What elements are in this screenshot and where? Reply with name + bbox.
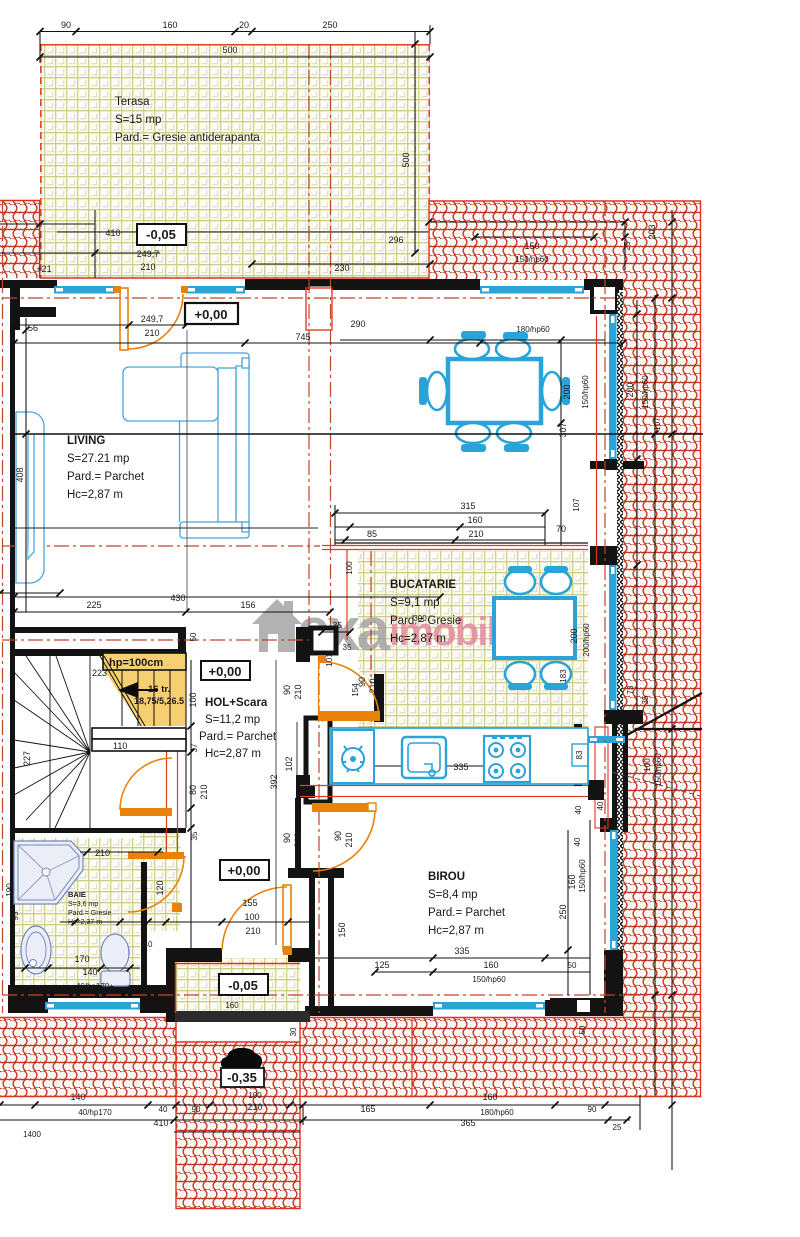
svg-text:Pard.= Gresie: Pard.= Gresie: [68, 910, 111, 917]
svg-text:210: 210: [247, 1102, 262, 1112]
svg-text:150/hp60: 150/hp60: [472, 975, 506, 984]
svg-text:150/hp60: 150/hp60: [578, 859, 587, 893]
svg-text:223: 223: [92, 668, 107, 678]
svg-text:35: 35: [343, 643, 352, 652]
svg-text:90: 90: [282, 833, 292, 843]
svg-text:S=11,2 mp: S=11,2 mp: [205, 714, 260, 726]
svg-text:Terasa: Terasa: [115, 96, 150, 108]
svg-text:120: 120: [155, 880, 165, 895]
svg-text:Pard.= Parchet: Pard.= Parchet: [67, 471, 145, 483]
svg-text:40/hp170: 40/hp170: [78, 1108, 112, 1117]
svg-text:150/hp60: 150/hp60: [515, 255, 549, 264]
svg-text:101: 101: [325, 653, 334, 667]
svg-text:500: 500: [222, 45, 237, 55]
svg-text:100: 100: [188, 692, 198, 707]
svg-text:90: 90: [282, 685, 292, 695]
svg-text:100: 100: [643, 758, 652, 772]
svg-text:183: 183: [559, 669, 568, 683]
svg-text:50: 50: [578, 1025, 587, 1034]
svg-text:Hc=2,87 m: Hc=2,87 m: [390, 633, 446, 645]
svg-text:140: 140: [70, 1092, 85, 1102]
svg-text:Pard.= Parchet: Pard.= Parchet: [428, 907, 506, 919]
svg-text:290: 290: [350, 319, 365, 329]
svg-text:-0,05: -0,05: [228, 978, 258, 993]
svg-text:Hc=2,87 m: Hc=2,87 m: [205, 748, 261, 760]
svg-text:410: 410: [105, 228, 120, 238]
svg-text:30: 30: [289, 1027, 298, 1036]
svg-text:-0,05: -0,05: [146, 227, 176, 242]
svg-text:210: 210: [140, 262, 155, 272]
svg-text:18,75/5,26.5: 18,75/5,26.5: [134, 696, 184, 706]
svg-text:365: 365: [460, 1118, 475, 1128]
svg-text:160: 160: [162, 20, 177, 30]
svg-text:40/hp170+: 40/hp170+: [76, 982, 114, 991]
svg-text:335: 335: [454, 946, 469, 956]
svg-text:150/hp60: 150/hp60: [581, 375, 590, 409]
svg-text:+21: +21: [36, 264, 51, 274]
svg-text:315: 315: [460, 501, 475, 511]
svg-text:160: 160: [225, 1001, 239, 1010]
svg-text:90: 90: [333, 831, 343, 841]
svg-text:50: 50: [189, 632, 198, 641]
svg-text:249,7: 249,7: [141, 314, 164, 324]
svg-text:40: 40: [574, 805, 583, 814]
svg-text:160: 160: [467, 515, 482, 525]
svg-text:107: 107: [653, 417, 662, 431]
svg-text:BUCATARIE: BUCATARIE: [390, 579, 456, 591]
svg-text:165: 165: [360, 1104, 375, 1114]
svg-text:210: 210: [293, 684, 303, 699]
svg-text:80: 80: [188, 785, 198, 795]
svg-text:HOL+Scara: HOL+Scara: [205, 697, 268, 709]
svg-text:Hc=2,87 m: Hc=2,87 m: [428, 925, 484, 937]
svg-text:40: 40: [573, 837, 582, 846]
svg-text:+0,00: +0,00: [209, 664, 242, 679]
svg-text:430: 430: [170, 593, 185, 603]
svg-text:180/hp60: 180/hp60: [480, 1108, 514, 1117]
svg-text:95: 95: [11, 911, 20, 920]
svg-text:296: 296: [388, 235, 403, 245]
svg-text:160: 160: [482, 1092, 497, 1102]
svg-text:+0,00: +0,00: [195, 307, 228, 322]
svg-text:90: 90: [192, 1105, 201, 1114]
svg-text:155: 155: [242, 898, 257, 908]
svg-text:100: 100: [345, 561, 354, 575]
svg-text:Hc=2,37 m: Hc=2,37 m: [68, 919, 102, 926]
svg-text:125: 125: [374, 960, 389, 970]
svg-text:BAIE: BAIE: [68, 890, 86, 899]
svg-text:110: 110: [113, 741, 127, 751]
svg-text:35: 35: [641, 695, 650, 704]
svg-text:210: 210: [144, 328, 159, 338]
svg-text:227: 227: [22, 751, 32, 766]
svg-text:102: 102: [284, 756, 294, 771]
svg-text:S=9,1 mp: S=9,1 mp: [390, 597, 440, 609]
svg-text:210: 210: [199, 784, 209, 799]
svg-text:307: 307: [558, 422, 568, 437]
svg-text:50: 50: [568, 961, 577, 970]
svg-text:410: 410: [153, 1118, 168, 1128]
svg-text:392: 392: [269, 774, 279, 789]
svg-text:180/hp60: 180/hp60: [516, 325, 550, 334]
svg-text:249,7: 249,7: [137, 249, 160, 259]
svg-text:210: 210: [95, 848, 110, 858]
svg-text:200: 200: [569, 628, 579, 643]
svg-text:210: 210: [293, 832, 303, 847]
svg-text:150/hp60: 150/hp60: [641, 375, 650, 409]
svg-text:90: 90: [357, 677, 367, 687]
svg-text:500: 500: [401, 152, 411, 167]
svg-text:83: 83: [575, 750, 584, 759]
svg-text:90: 90: [588, 1105, 597, 1114]
svg-text:40: 40: [144, 940, 153, 949]
svg-text:200: 200: [625, 382, 635, 397]
svg-text:-0,35: -0,35: [227, 1070, 257, 1085]
svg-text:160: 160: [483, 960, 498, 970]
svg-text:hp=100cm: hp=100cm: [109, 657, 163, 669]
svg-text:170: 170: [74, 954, 89, 964]
svg-text:200/hp60: 200/hp60: [582, 623, 591, 657]
svg-text:BIROU: BIROU: [428, 871, 465, 883]
svg-text:100: 100: [244, 912, 259, 922]
svg-text:250: 250: [558, 904, 568, 919]
svg-text:25: 25: [623, 241, 632, 250]
svg-text:745: 745: [295, 332, 310, 342]
svg-text:190: 190: [5, 883, 14, 897]
svg-text:S=8,4 mp: S=8,4 mp: [428, 889, 478, 901]
svg-text:90: 90: [61, 20, 71, 30]
svg-text:210: 210: [468, 529, 483, 539]
svg-text:S=3,6 mp: S=3,6 mp: [68, 901, 98, 908]
svg-text:150: 150: [524, 241, 539, 251]
svg-text:250: 250: [322, 20, 337, 30]
svg-text:73: 73: [626, 685, 635, 694]
svg-text:Hc=2,87 m: Hc=2,87 m: [67, 489, 123, 501]
svg-text:203: 203: [647, 224, 657, 239]
svg-text:40: 40: [159, 1105, 168, 1114]
svg-text:25: 25: [613, 1123, 622, 1132]
svg-text:210: 210: [368, 678, 378, 693]
svg-text:Pard.= Gresie antiderapanta: Pard.= Gresie antiderapanta: [115, 132, 260, 144]
svg-text:100: 100: [248, 1091, 262, 1100]
svg-text:LIVING: LIVING: [67, 435, 105, 447]
svg-text:S=15 mp: S=15 mp: [115, 114, 161, 126]
svg-text:156: 156: [240, 600, 255, 610]
svg-text:85: 85: [367, 529, 377, 539]
svg-text:+0,00: +0,00: [228, 863, 261, 878]
svg-text:56: 56: [28, 323, 38, 333]
svg-text:1400: 1400: [23, 1130, 41, 1139]
svg-text:20: 20: [239, 20, 249, 30]
svg-text:40: 40: [596, 801, 605, 810]
svg-text:225: 225: [86, 600, 101, 610]
svg-text:S=27.21 mp: S=27.21 mp: [67, 453, 129, 465]
svg-text:408: 408: [15, 467, 25, 482]
svg-text:Pard.= Parchet: Pard.= Parchet: [199, 731, 277, 743]
svg-text:-35: -35: [330, 621, 342, 630]
svg-text:210: 210: [344, 832, 354, 847]
svg-text:150/hp60: 150/hp60: [654, 753, 663, 787]
svg-text:210: 210: [245, 926, 260, 936]
svg-text:150: 150: [337, 922, 347, 937]
svg-text:335: 335: [453, 762, 468, 772]
svg-text:200: 200: [562, 384, 572, 399]
svg-text:Pard.= Gresie: Pard.= Gresie: [390, 615, 461, 627]
svg-text:107: 107: [572, 498, 581, 512]
